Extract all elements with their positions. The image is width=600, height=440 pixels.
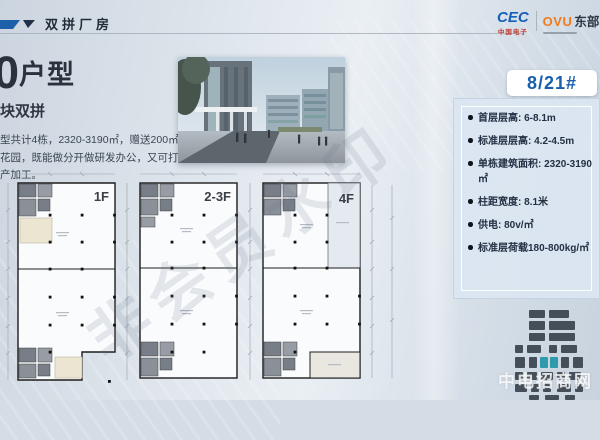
floorplan-1f: 1F: [18, 183, 116, 383]
unit-type-title: 0户型: [0, 50, 178, 95]
unit-type-suffix: 户型: [19, 60, 75, 90]
spec-item-floor-height: 首层层高: 6-8.1m: [468, 111, 596, 126]
spec-item-floor-load: 标准层荷载180-800kg/㎡: [468, 241, 596, 256]
cec-logo-subtext: 中国电子: [498, 26, 528, 36]
bullet-icon: [468, 138, 473, 143]
floorplan-2-3f: 2-3F: [140, 183, 238, 378]
cec-logo-text: CEC: [497, 10, 529, 25]
building-number-badge: 8/21#: [507, 70, 597, 96]
spec-item-power-supply: 供电: 80v/㎡: [468, 218, 596, 233]
bullet-icon: [468, 245, 473, 250]
bullet-icon: [468, 115, 473, 120]
bullet-icon: [468, 199, 473, 204]
spec-item-column-spacing: 柱距宽度: 8.1米: [468, 195, 596, 210]
site-key-plan: [505, 308, 600, 400]
brand-logos: CEC 中国电子 OVU 东部: [497, 8, 600, 36]
beige-room-bottom: [55, 357, 82, 378]
stair-core-top: [264, 184, 297, 215]
desc-line-1: 型共计4栋，2320-3190㎡，赠送200㎡: [0, 132, 178, 150]
floorplan-4f: 4F: [263, 183, 361, 378]
header-flag-icon: [0, 19, 38, 31]
architectural-rendering-photo: [178, 57, 345, 163]
specs-panel: 首层层高: 6-8.1m 标准层层高: 4.2-4.5m 单栋建筑面积: 232…: [453, 98, 600, 299]
spec-item-building-area: 单栋建筑面积: 2320-3190 ㎡: [468, 157, 596, 187]
brand-divider: [536, 11, 537, 31]
building-number-label: 8/21#: [527, 73, 577, 94]
spec-item-standard-floor-height: 标准层层高: 4.2-4.5m: [468, 134, 596, 149]
floorplan-2-3f-label: 2-3F: [204, 189, 231, 204]
stair-core-top: [19, 184, 52, 216]
ovu-logo-text: OVU: [543, 14, 573, 29]
page-title: 双拼厂房: [45, 14, 113, 33]
floorplan-4f-label: 4F: [339, 191, 354, 206]
cec-logo: CEC 中国电子: [497, 10, 529, 36]
bullet-icon: [468, 222, 473, 227]
unit-type-number: 0: [0, 47, 19, 98]
floorplans: 1F: [0, 160, 445, 400]
ovu-logo-caption: [543, 32, 577, 34]
floorplan-1f-label: 1F: [94, 189, 109, 204]
bullet-icon: [468, 161, 473, 166]
highlighted-buildings: [540, 357, 558, 368]
ovu-logo-name: 东部: [574, 11, 599, 30]
slide-root: 双拼厂房 CEC 中国电子 OVU 东部 0户型 块双拼 型共计4栋，2320-…: [0, 0, 600, 400]
header-divider: [0, 33, 524, 34]
unit-type-subtitle: 块双拼: [0, 100, 178, 121]
ovu-logo: OVU 东部: [543, 11, 600, 34]
specs-list: 首层层高: 6-8.1m 标准层层高: 4.2-4.5m 单栋建筑面积: 232…: [454, 99, 599, 256]
beige-room-top: [20, 218, 52, 243]
